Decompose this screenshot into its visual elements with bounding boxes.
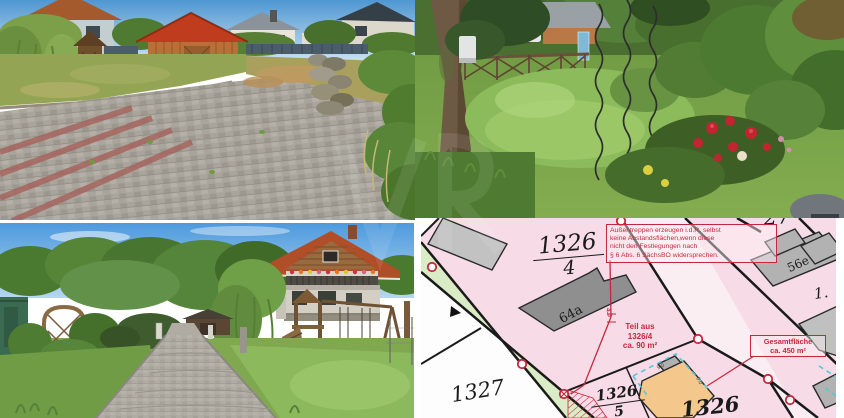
sunny-patch bbox=[290, 360, 410, 410]
note-abstandsflaechen: Außentreppen erzeugen i.d.R. selbst kein… bbox=[606, 224, 777, 263]
note-line: keine Abstandsflächen,wenn diese bbox=[610, 235, 773, 243]
note-line: Teil aus bbox=[602, 322, 678, 332]
blue-sign bbox=[578, 32, 589, 60]
yellow-flower bbox=[661, 179, 669, 187]
note-gesamtflaeche: Gesamtfläche ca. 450 m² bbox=[750, 335, 826, 357]
note-line: ca. 90 m² bbox=[602, 341, 678, 351]
note-line: ca. 450 m² bbox=[753, 346, 823, 355]
note-teil-aus: Teil aus 1326/4 ca. 90 m² bbox=[602, 322, 678, 351]
photo-paved-yard-with-shed bbox=[0, 0, 415, 220]
note-line: Außentreppen erzeugen i.d.R. selbst bbox=[610, 227, 773, 235]
note-line: Gesamtfläche bbox=[753, 337, 823, 346]
note-line: nicht den Festlegungen nach bbox=[610, 243, 773, 251]
note-line: § 6 Abs. 6 SächsBO widersprechen. bbox=[610, 252, 773, 260]
parcel-label-1326: 1326 bbox=[680, 393, 740, 418]
property-photo-collage: 13264 1327 13265 1326 64a 56e 27 1. Auße… bbox=[0, 0, 844, 418]
shaded-grass bbox=[415, 152, 535, 218]
photo-garden-path-to-house bbox=[0, 223, 414, 418]
white-planter bbox=[459, 36, 476, 63]
cream-flower bbox=[737, 151, 747, 161]
photo-overgrown-garden bbox=[415, 0, 844, 218]
parcel-label-1326-4: 13264 bbox=[531, 229, 605, 282]
cadastral-map: 13264 1327 13265 1326 64a 56e 27 1. Auße… bbox=[421, 218, 836, 418]
note-line: 1326/4 bbox=[602, 332, 678, 342]
parcel-label-cut: 1. bbox=[813, 285, 829, 303]
parcel-label-1326-5: 13265 bbox=[589, 382, 647, 418]
cloud bbox=[190, 226, 290, 236]
yellow-flower bbox=[643, 165, 653, 175]
